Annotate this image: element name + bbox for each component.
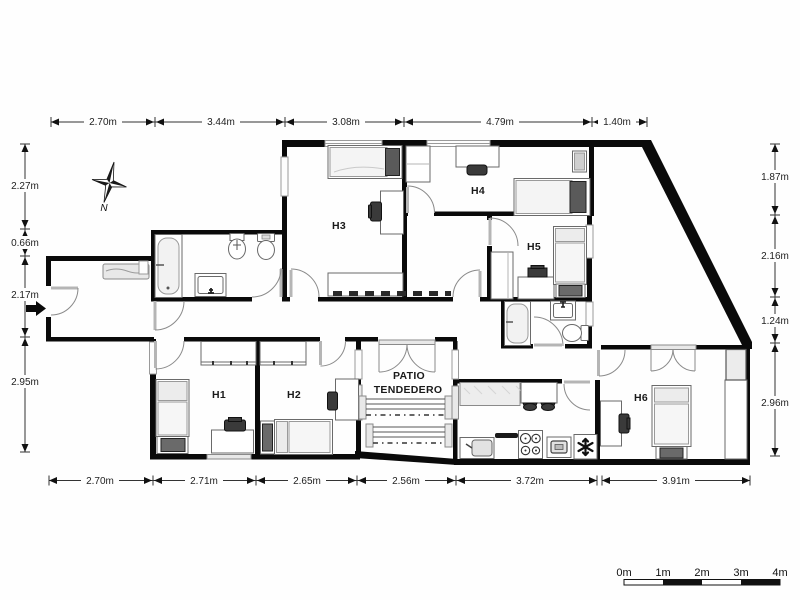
svg-text:1.24m: 1.24m [761,316,789,327]
svg-text:TENDEDERO: TENDEDERO [374,384,443,396]
svg-text:H2: H2 [287,389,301,401]
svg-text:H4: H4 [471,185,485,197]
svg-text:0.66m: 0.66m [11,238,39,249]
svg-text:1.40m: 1.40m [603,117,631,128]
svg-text:1.87m: 1.87m [761,172,789,183]
svg-text:3.91m: 3.91m [662,476,690,487]
svg-text:3m: 3m [733,567,748,579]
svg-text:3.72m: 3.72m [516,476,544,487]
svg-text:4m: 4m [772,567,787,579]
svg-text:2.27m: 2.27m [11,181,39,192]
svg-text:2.96m: 2.96m [761,398,789,409]
svg-text:2.65m: 2.65m [293,476,321,487]
svg-text:3.44m: 3.44m [207,117,235,128]
svg-text:4.79m: 4.79m [486,117,514,128]
svg-text:H5: H5 [527,241,541,253]
svg-text:H3: H3 [332,220,346,232]
svg-text:N: N [100,203,108,214]
svg-text:0m: 0m [616,567,631,579]
svg-text:1m: 1m [655,567,670,579]
svg-text:2.70m: 2.70m [86,476,114,487]
svg-text:3.08m: 3.08m [332,117,360,128]
svg-text:PATIO: PATIO [393,370,425,382]
svg-text:2.56m: 2.56m [392,476,420,487]
svg-text:2.17m: 2.17m [11,290,39,301]
svg-text:2.70m: 2.70m [89,117,117,128]
svg-text:H6: H6 [634,392,648,404]
svg-text:2m: 2m [694,567,709,579]
svg-text:H1: H1 [212,389,226,401]
svg-text:2.95m: 2.95m [11,377,39,388]
svg-text:2.71m: 2.71m [190,476,218,487]
svg-text:2.16m: 2.16m [761,251,789,262]
